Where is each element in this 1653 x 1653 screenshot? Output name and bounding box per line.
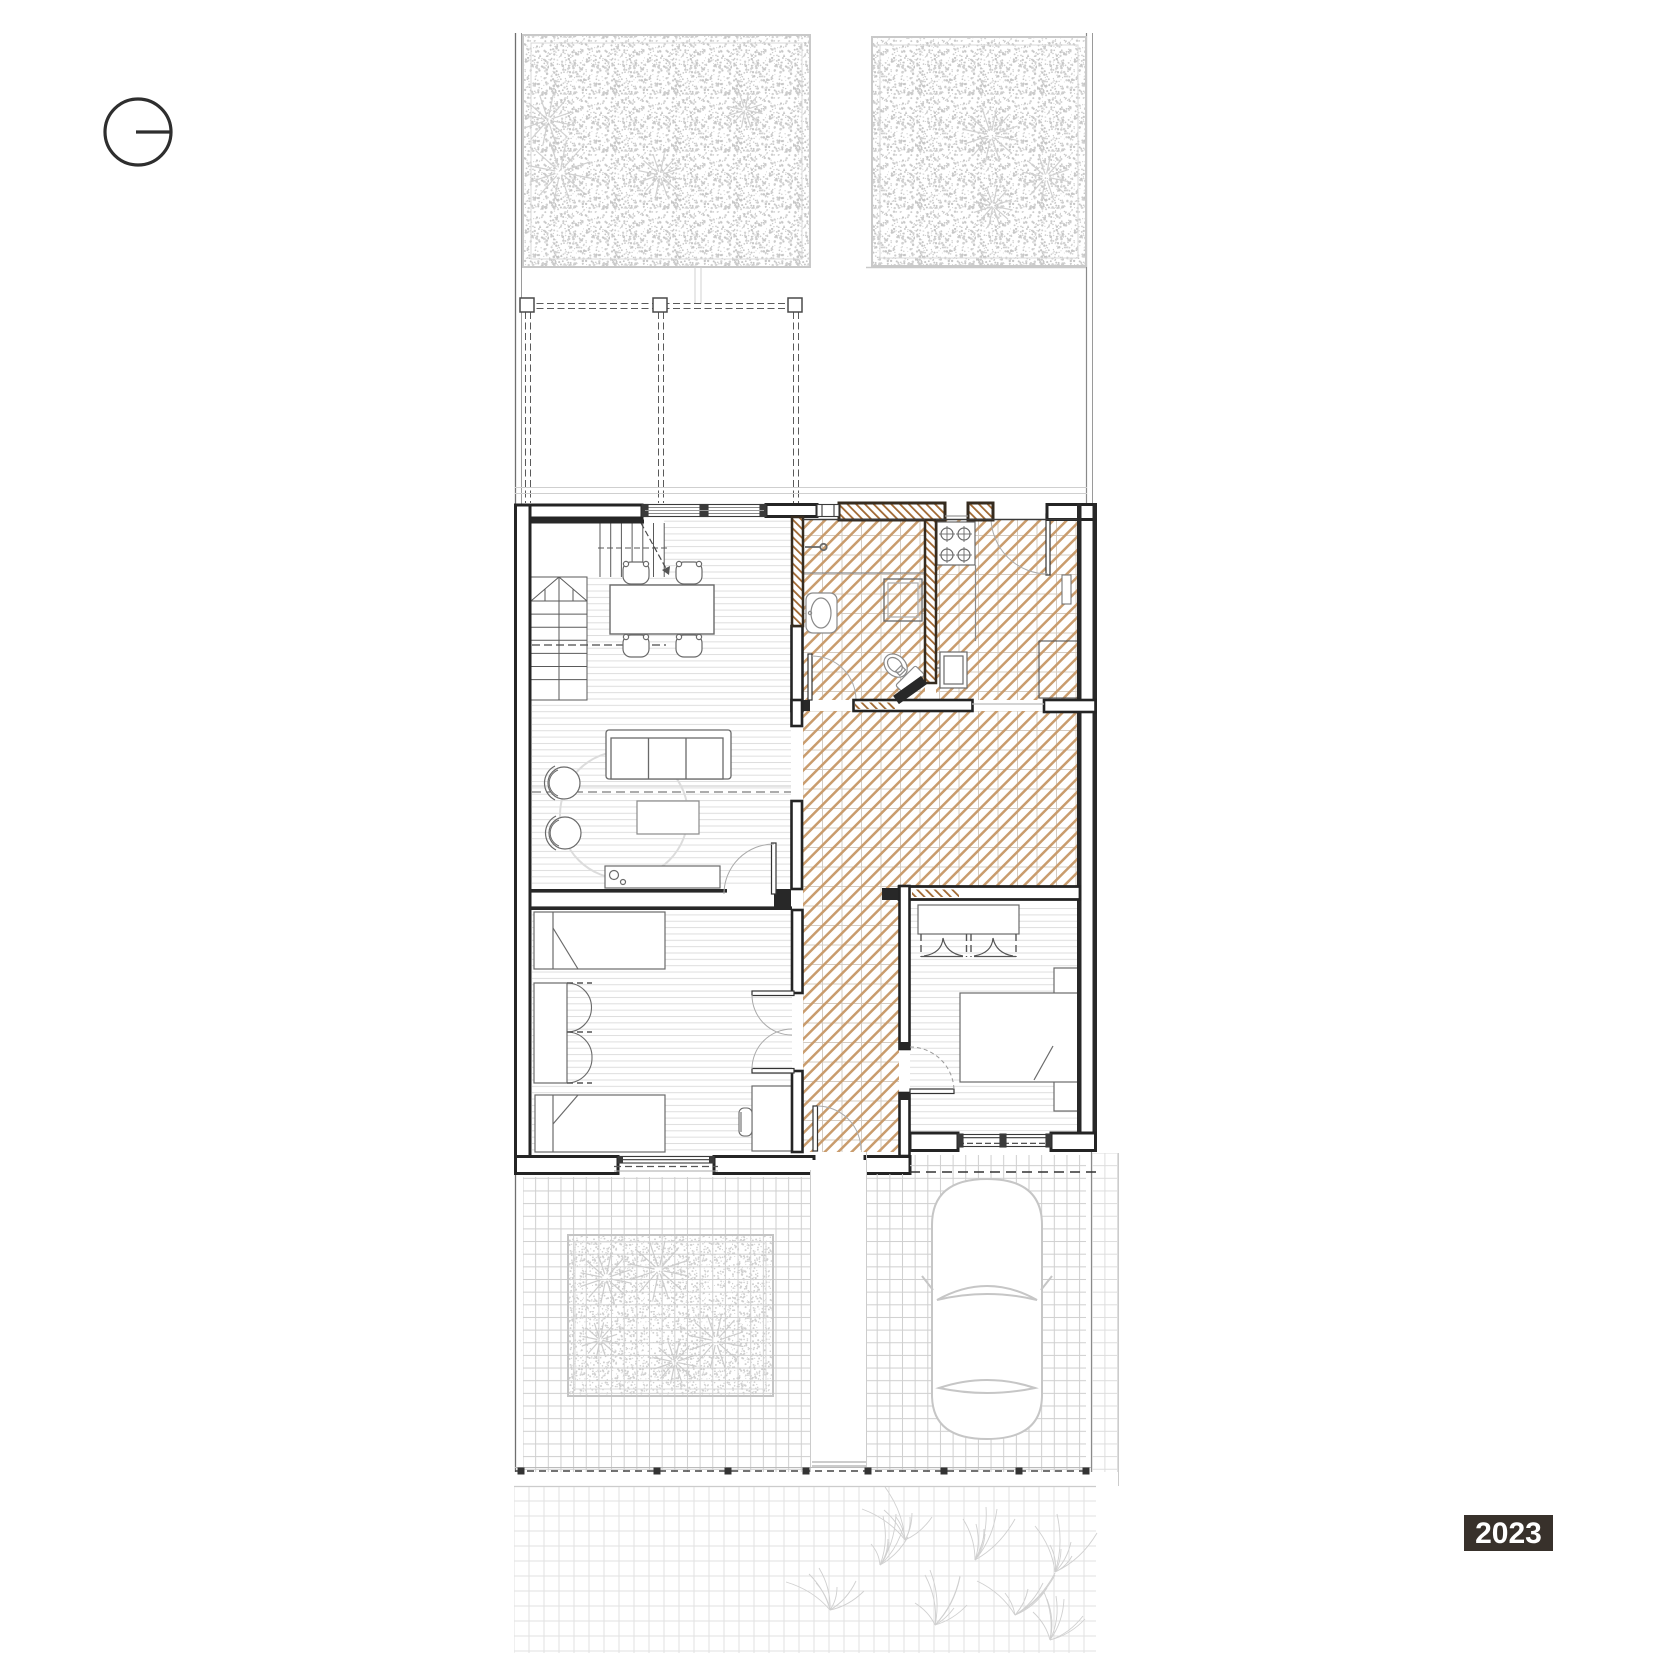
svg-text:2023: 2023 [1475, 1517, 1542, 1550]
